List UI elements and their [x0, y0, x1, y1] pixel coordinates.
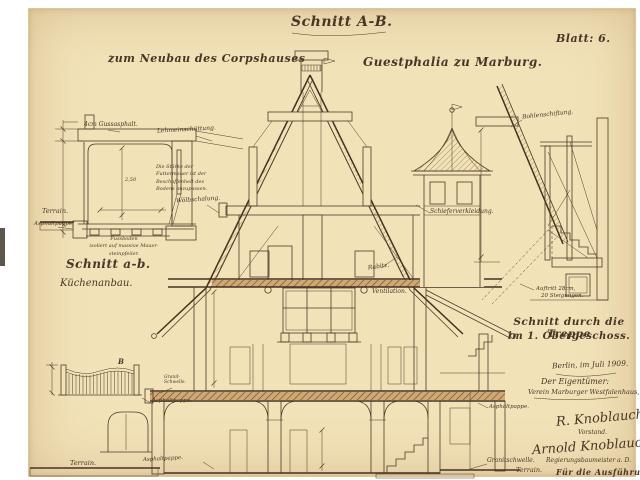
- label-asphaltpappe-right: Asphaltpappe.: [489, 404, 529, 410]
- stair-title-line2: im 1. Obergeschoss.: [500, 331, 638, 343]
- execution-heading: Für die Ausführung:: [556, 468, 640, 477]
- label-gussasphalt: 4cm Gussasphalt.: [84, 122, 138, 129]
- sheet-subtitle-left: zum Neubau des Corpshauses: [108, 53, 305, 66]
- label-granitschwelle: Granitschwelle.: [487, 458, 535, 465]
- signature-1-role: Vorstand.: [578, 430, 607, 437]
- label-terrain-right: Terrain.: [516, 467, 542, 474]
- signature-2-role: Regierungsbaumeister a. D.: [546, 458, 631, 465]
- label-ventilation: Ventilation.: [372, 289, 407, 296]
- sheet-number: Blatt: 6.: [556, 33, 611, 46]
- label-auftritt: Auftritt 28cm,: [536, 286, 575, 292]
- label-steigungen: 20 Steigungen.: [541, 293, 583, 299]
- kitchen-subtitle: Küchenanbau.: [60, 278, 132, 290]
- note-futtermauer: Die Stärke der Futtermauer ist der Besch…: [156, 164, 207, 193]
- sheet-subtitle-right: Guestphalia zu Marburg.: [363, 56, 542, 70]
- scanned-architectural-sheet: { "sheet": { "title": "Schnitt A-B.", "s…: [0, 0, 640, 480]
- label-asphaltpappe-kitchen: Asphaltpappe.: [34, 221, 74, 227]
- label-asphaltpappe-upper: Asphaltpappe.: [152, 398, 192, 404]
- label-granit-schwelle-small: Granit- Schwelle.: [164, 375, 186, 385]
- scan-edge-smudge: [0, 228, 5, 266]
- owner-heading: Der Eigentümer:: [541, 377, 609, 386]
- kitchen-title: Schnitt a-b.: [66, 258, 151, 272]
- section-marker-b: B: [118, 358, 124, 366]
- owner-name: Verein Marburger Westfalenhaus, E.V.: [528, 389, 640, 396]
- label-room-height: 2,50: [125, 178, 136, 184]
- title-underline-flourish: [292, 32, 386, 36]
- label-schieferverkleidung: Schieferverkleidung.: [430, 209, 494, 216]
- note-fussboden: Fussboden isoliert auf massive Mauer- st…: [86, 236, 162, 258]
- label-terrain-kitchen: Terrain.: [42, 208, 68, 215]
- sheet-title: Schnitt A-B.: [291, 14, 393, 30]
- label-terrain-left: Terrain.: [70, 460, 96, 467]
